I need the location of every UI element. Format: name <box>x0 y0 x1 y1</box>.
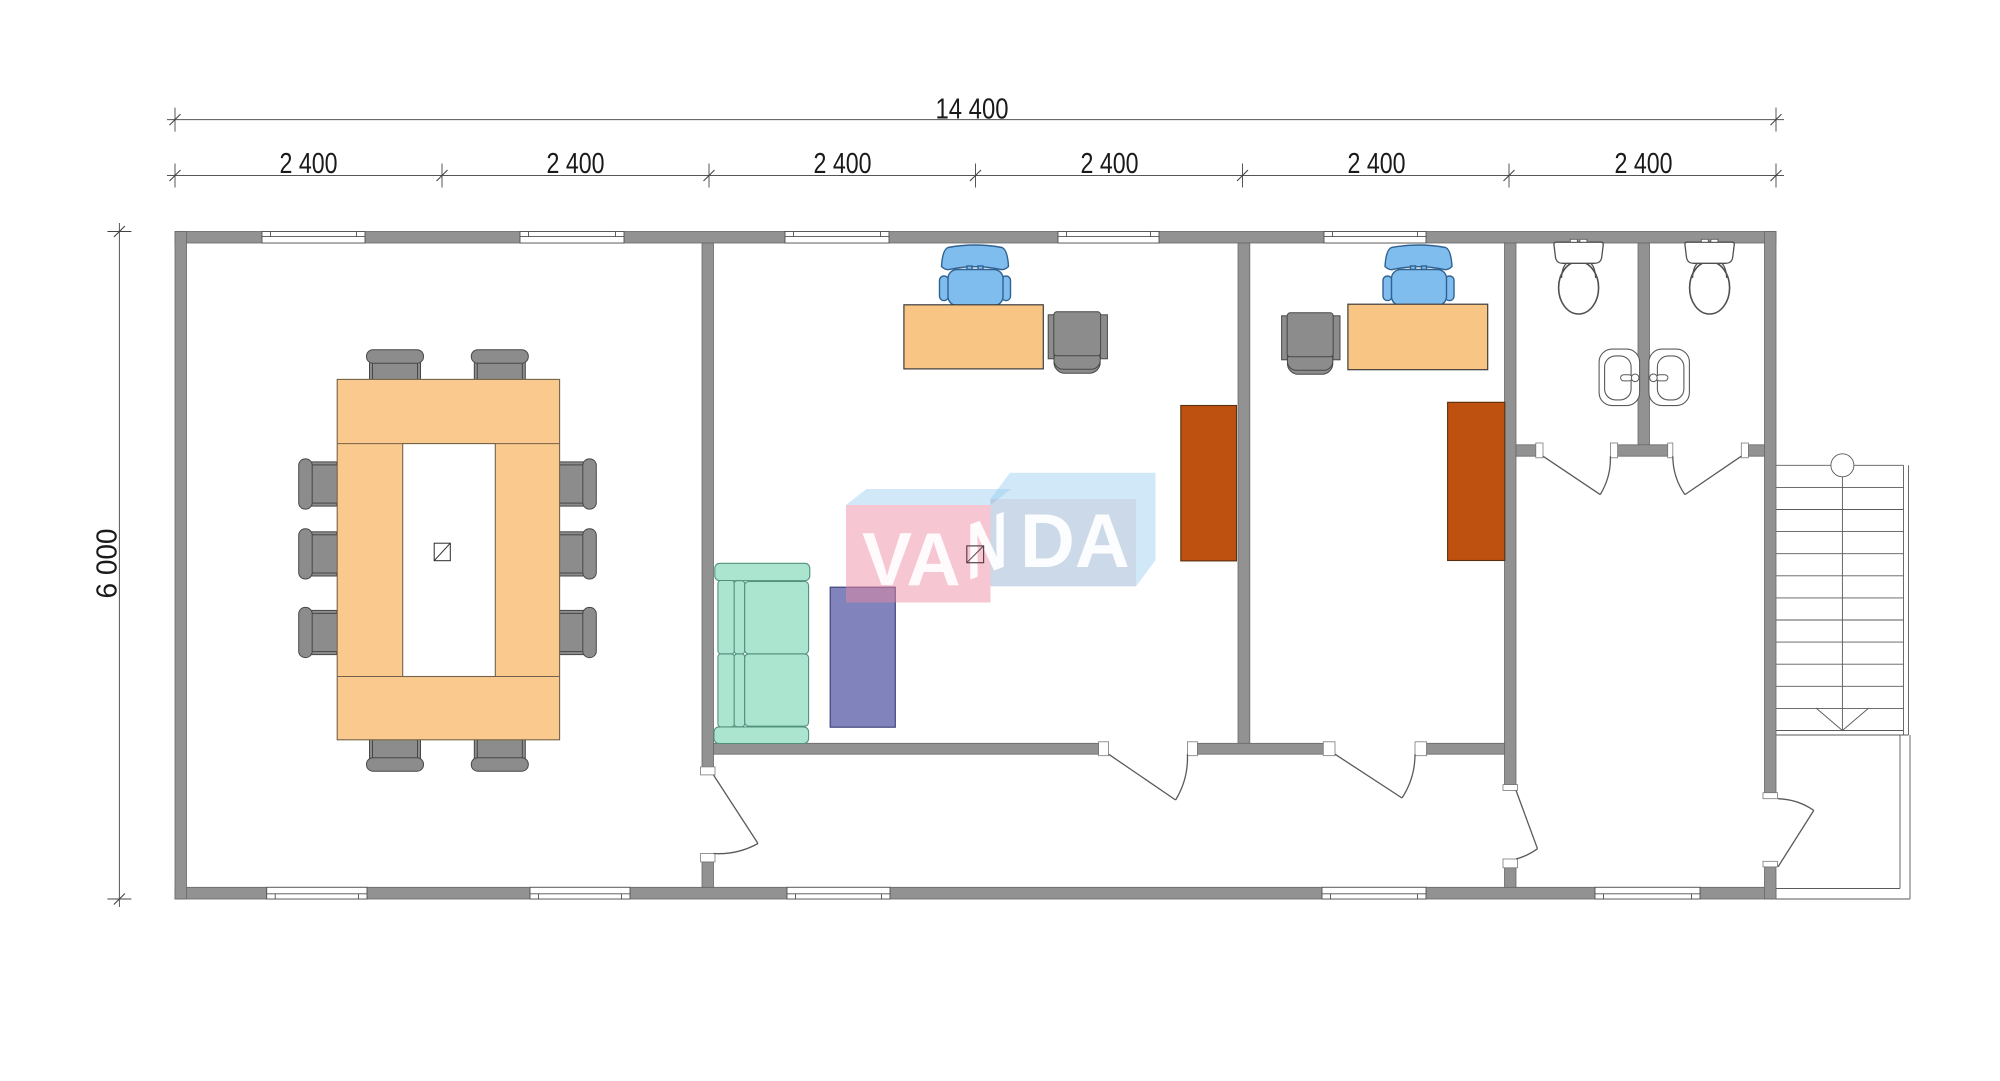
svg-text:VA: VA <box>862 517 961 601</box>
svg-text:2 400: 2 400 <box>280 148 338 180</box>
svg-text:2 400: 2 400 <box>814 148 872 180</box>
svg-text:14 400: 14 400 <box>936 94 1009 126</box>
svg-text:2 400: 2 400 <box>1081 148 1139 180</box>
svg-text:N: N <box>967 494 1008 598</box>
svg-text:2 400: 2 400 <box>547 148 605 180</box>
svg-text:2 400: 2 400 <box>1348 148 1406 180</box>
svg-text:2 400: 2 400 <box>1615 148 1673 180</box>
svg-text:DA: DA <box>1020 499 1130 584</box>
svg-text:6 000: 6 000 <box>92 529 124 599</box>
